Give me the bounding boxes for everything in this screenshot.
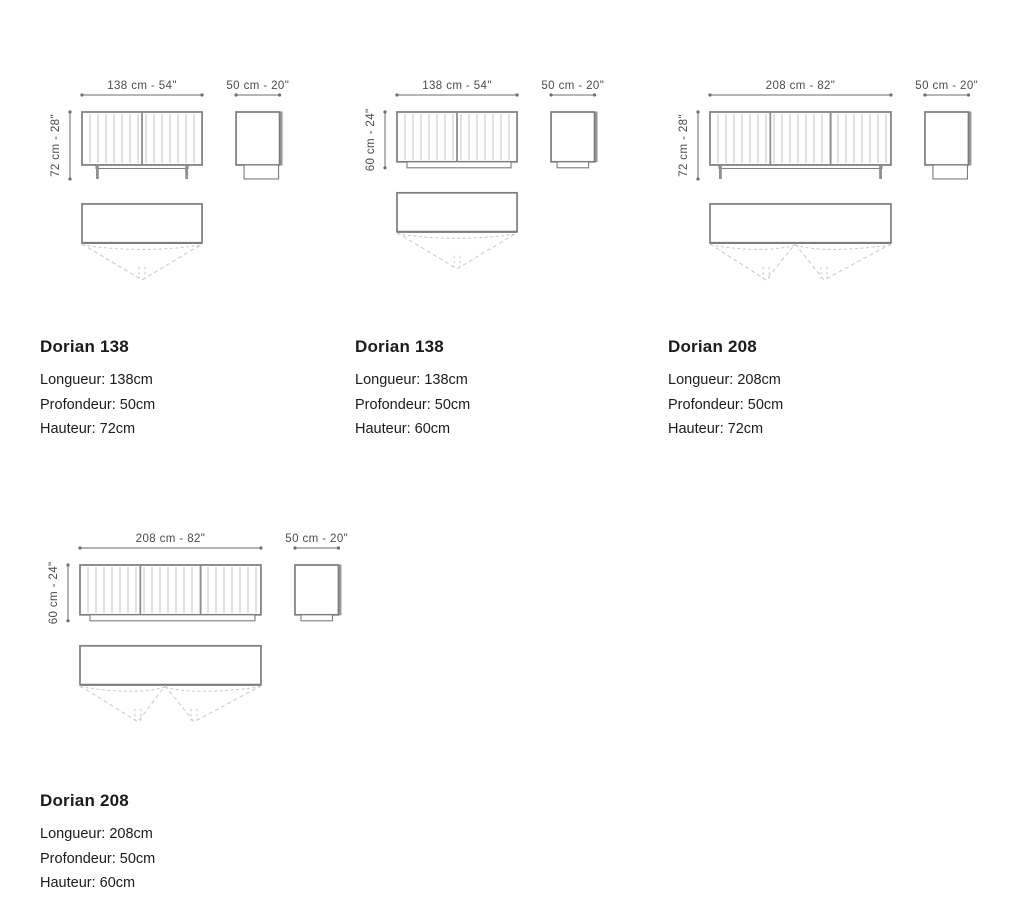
spec-hauteur: Hauteur: 60cm: [355, 417, 470, 442]
dimension-endpoint: [68, 177, 71, 180]
spec-profondeur: Profondeur: 50cm: [40, 847, 155, 872]
spec-hauteur: Hauteur: 72cm: [40, 417, 155, 442]
top-view-body: [397, 193, 517, 232]
door-swing-arc: [80, 686, 165, 722]
product-info-block: Dorian 138 Longueur: 138cm Profondeur: 5…: [355, 337, 470, 442]
spec-profondeur: Profondeur: 50cm: [668, 393, 783, 418]
dimension-endpoint: [593, 93, 596, 96]
spec-longueur: Longueur: 208cm: [668, 368, 783, 393]
dimension-endpoint: [549, 93, 552, 96]
dimension-endpoint: [515, 93, 518, 96]
technical-drawing: 208 cm - 82"50 cm - 20"72 cm - 28": [668, 60, 979, 290]
dimension-endpoint: [68, 110, 71, 113]
height-dimension-label: 60 cm - 24": [365, 108, 377, 171]
product-info-block: Dorian 208 Longueur: 208cm Profondeur: 5…: [668, 337, 783, 442]
dimension-endpoint: [293, 546, 296, 549]
dimension-endpoint: [66, 619, 69, 622]
spec-hauteur: Hauteur: 60cm: [40, 871, 155, 896]
dimension-endpoint: [278, 93, 281, 96]
dimension-endpoint: [383, 166, 386, 169]
technical-drawing: 138 cm - 54"50 cm - 20"60 cm - 24": [355, 60, 605, 279]
side-view-body: [236, 112, 280, 165]
dimension-diagram-dorian-208-h60: 208 cm - 82"50 cm - 20"60 cm - 24": [38, 513, 349, 737]
top-view-body: [80, 646, 261, 685]
depth-dimension-label: 50 cm - 20": [285, 533, 348, 545]
dimension-endpoint: [383, 110, 386, 113]
front-view-body: [710, 112, 891, 165]
spec-longueur: Longueur: 138cm: [40, 368, 155, 393]
dimension-diagram-dorian-138-h72: 138 cm - 54"50 cm - 20"72 cm - 28": [40, 60, 290, 295]
dimension-endpoint: [337, 546, 340, 549]
dimension-endpoint: [696, 177, 699, 180]
dimension-endpoint: [80, 93, 83, 96]
front-left-leg: [719, 165, 722, 179]
door-edge-trace: [82, 245, 202, 250]
top-view-body: [710, 204, 891, 243]
door-edge-trace: [397, 234, 517, 239]
technical-drawing: 138 cm - 54"50 cm - 20"72 cm - 28": [40, 60, 290, 290]
product-info-block: Dorian 208 Longueur: 208cm Profondeur: 5…: [40, 791, 155, 896]
spec-hauteur: Hauteur: 72cm: [668, 417, 783, 442]
front-left-leg: [96, 165, 99, 179]
door-edge-trace: [795, 245, 891, 250]
door-swing-arc: [710, 244, 795, 280]
top-view-body: [82, 204, 202, 243]
width-dimension-label: 138 cm - 54": [107, 80, 177, 92]
dimension-diagram-dorian-138-h60: 138 cm - 54"50 cm - 20"60 cm - 24": [355, 60, 605, 284]
door-swing-arc: [165, 686, 261, 722]
technical-drawing: 208 cm - 82"50 cm - 20"60 cm - 24": [38, 513, 349, 732]
dimension-endpoint: [889, 93, 892, 96]
door-swing-arc: [397, 233, 517, 269]
dimension-diagram-dorian-208-h72: 208 cm - 82"50 cm - 20"72 cm - 28": [668, 60, 979, 295]
door-edge-trace: [165, 687, 261, 692]
dimension-endpoint: [234, 93, 237, 96]
dimension-endpoint: [967, 93, 970, 96]
door-edge-trace: [710, 245, 795, 250]
front-right-leg: [879, 165, 882, 179]
dimension-endpoint: [696, 110, 699, 113]
product-name: Dorian 138: [355, 337, 470, 357]
depth-dimension-label: 50 cm - 20": [541, 80, 604, 92]
dimension-endpoint: [259, 546, 262, 549]
door-swing-arc: [82, 244, 202, 280]
product-name: Dorian 138: [40, 337, 155, 357]
side-view-base: [244, 165, 279, 179]
dimension-endpoint: [200, 93, 203, 96]
height-dimension-label: 60 cm - 24": [48, 561, 60, 624]
side-view-base: [933, 165, 968, 179]
depth-dimension-label: 50 cm - 20": [915, 80, 978, 92]
width-dimension-label: 138 cm - 54": [422, 80, 492, 92]
side-view-plinth: [301, 615, 333, 621]
dimension-endpoint: [395, 93, 398, 96]
spec-profondeur: Profondeur: 50cm: [355, 393, 470, 418]
side-view-body: [551, 112, 595, 162]
front-view-body: [80, 565, 261, 615]
front-right-leg: [185, 165, 188, 179]
front-plinth: [407, 162, 511, 168]
door-swing-arc: [795, 244, 891, 280]
spec-longueur: Longueur: 138cm: [355, 368, 470, 393]
product-name: Dorian 208: [40, 791, 155, 811]
side-view-body: [925, 112, 969, 165]
height-dimension-label: 72 cm - 28": [678, 114, 690, 177]
depth-dimension-label: 50 cm - 20": [226, 80, 289, 92]
product-info-block: Dorian 138 Longueur: 138cm Profondeur: 5…: [40, 337, 155, 442]
dimension-endpoint: [78, 546, 81, 549]
front-plinth: [90, 615, 255, 621]
dimension-endpoint: [708, 93, 711, 96]
width-dimension-label: 208 cm - 82": [136, 533, 206, 545]
side-view-plinth: [557, 162, 589, 168]
dimension-endpoint: [923, 93, 926, 96]
side-view-body: [295, 565, 339, 615]
spec-profondeur: Profondeur: 50cm: [40, 393, 155, 418]
product-name: Dorian 208: [668, 337, 783, 357]
height-dimension-label: 72 cm - 28": [50, 114, 62, 177]
door-edge-trace: [80, 687, 165, 692]
width-dimension-label: 208 cm - 82": [766, 80, 836, 92]
dimension-endpoint: [66, 563, 69, 566]
spec-sheet-page: 138 cm - 54"50 cm - 20"72 cm - 28" 138 c…: [0, 0, 1024, 911]
spec-longueur: Longueur: 208cm: [40, 822, 155, 847]
